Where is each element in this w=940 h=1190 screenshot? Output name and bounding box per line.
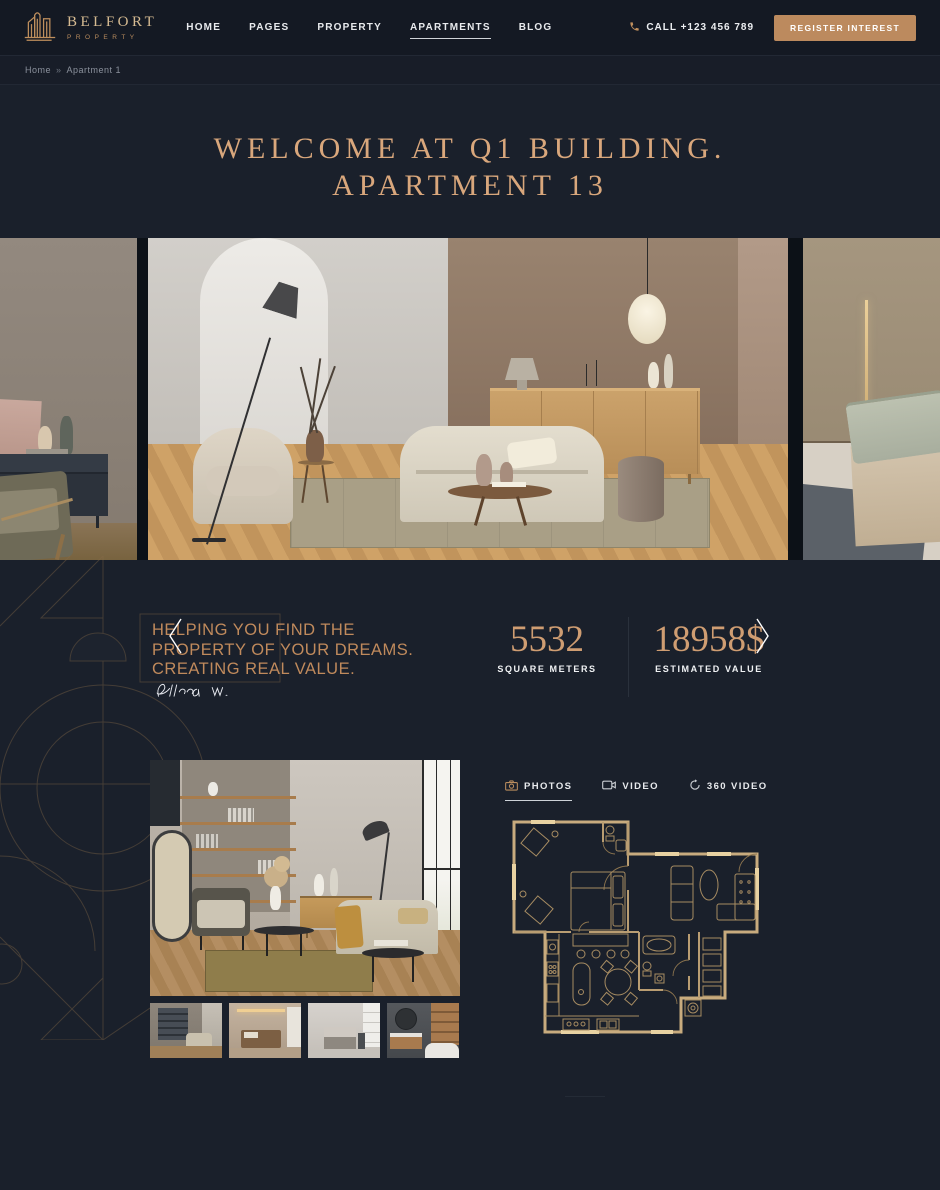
white-bottle (330, 868, 338, 896)
stats-divider (628, 617, 629, 697)
rotate-360-icon (689, 779, 701, 794)
table-leg (300, 934, 302, 956)
video-camera-icon (602, 780, 616, 793)
window-mullion (422, 868, 460, 870)
pillow (244, 1032, 258, 1038)
wood-shelf (178, 848, 296, 851)
thumbnail-bathroom[interactable] (387, 1003, 459, 1058)
thumbnail-living-room[interactable] (150, 1003, 222, 1058)
sofa-pillow (398, 908, 428, 924)
chevron-right-icon (752, 617, 776, 655)
black-coffee-table (254, 926, 314, 935)
dark-corner (150, 760, 180, 826)
carousel-slide-main[interactable] (148, 238, 788, 560)
floor (308, 1049, 380, 1058)
shelf-vase (208, 782, 218, 796)
white-vase (648, 362, 659, 388)
table-leg (412, 956, 414, 982)
quote-line2: PROPERTY OF YOUR DREAMS. (152, 641, 413, 661)
brand-text: BELFORT PROPERTY (67, 14, 157, 41)
floor-lamp-base (192, 538, 226, 542)
featured-photo-living-room[interactable] (150, 760, 460, 996)
armchair-cushion (206, 466, 280, 496)
mustard-throw (334, 905, 364, 949)
photo-carousel (0, 238, 940, 560)
island-base (324, 1037, 356, 1049)
books-row (228, 808, 254, 822)
oval-screen (152, 830, 192, 942)
tab-video[interactable]: VIDEO (602, 779, 659, 801)
tab-label: VIDEO (622, 781, 659, 792)
nav-item-home[interactable]: HOME (186, 16, 221, 39)
chevron-left-icon (166, 617, 190, 655)
belfort-property-page: BELFORT PROPERTY HOME PAGES PROPERTY APA… (0, 0, 940, 1190)
stat-label: SQUARE METERS (488, 664, 606, 674)
wood-shelf (178, 796, 296, 799)
books-row (196, 834, 218, 848)
page-title-line2: APARTMENT 13 (0, 167, 940, 204)
brand-tagline: PROPERTY (67, 34, 157, 41)
wood-vanity (390, 1037, 422, 1049)
tab-label: 360 VIDEO (707, 781, 768, 792)
register-interest-button[interactable]: REGISTER INTEREST (774, 15, 916, 41)
window (363, 1003, 380, 1047)
arch-niche (200, 238, 328, 444)
tabletop-vase (476, 454, 492, 486)
quote-line3: CREATING REAL VALUE. (152, 660, 413, 680)
header-right: CALL +123 456 789 REGISTER INTEREST (629, 15, 916, 41)
candle (586, 364, 587, 386)
quote-line1: HELPING YOU FIND THE (152, 621, 413, 641)
pendant-cord (647, 238, 648, 296)
page-title-line1: WELCOME AT Q1 BUILDING. (0, 130, 940, 167)
camera-icon (505, 780, 518, 794)
brand-logo[interactable]: BELFORT PROPERTY (22, 8, 157, 47)
armchair-cushion (197, 900, 245, 928)
stat-square-meters: 5532 SQUARE METERS (488, 620, 606, 674)
floor (150, 1046, 222, 1058)
sideboard-leg (688, 474, 691, 484)
call-label: CALL +123 456 789 (646, 22, 754, 33)
breadcrumb-bar: Home»Apartment 1 (0, 55, 940, 85)
carousel-slide-right[interactable] (803, 238, 940, 560)
tab-360-video[interactable]: 360 VIDEO (689, 779, 768, 801)
table-lamp-base (517, 380, 527, 390)
white-bottle (664, 354, 673, 388)
carousel-slide-left[interactable] (0, 238, 137, 560)
floor (229, 1048, 301, 1058)
wood-shelf (178, 822, 296, 825)
floor-plan (503, 812, 781, 1052)
thumbnail-kitchen[interactable] (308, 1003, 380, 1058)
breadcrumb-current: Apartment 1 (67, 65, 122, 75)
nav-item-property[interactable]: PROPERTY (317, 16, 382, 39)
table-leg (266, 934, 268, 956)
carousel-prev-button[interactable] (166, 616, 190, 656)
section-divider-dash (565, 1096, 605, 1097)
island-top (324, 1027, 356, 1037)
tab-label: PHOTOS (524, 781, 572, 792)
chair-leg (242, 936, 244, 950)
breadcrumb-separator: » (56, 65, 62, 75)
agent-signature (152, 678, 262, 709)
tab-photos[interactable]: PHOTOS (505, 779, 572, 801)
cove-light (237, 1009, 285, 1012)
bar-stool (358, 1033, 365, 1049)
thumbnail-bedroom[interactable] (229, 1003, 301, 1058)
books (374, 940, 408, 946)
stat-label: ESTIMATED VALUE (648, 664, 770, 674)
wood-shelving (431, 1003, 459, 1045)
white-vase (314, 874, 324, 896)
building-logo-icon (22, 8, 58, 47)
breadcrumb: Home»Apartment 1 (25, 65, 121, 75)
window (287, 1007, 301, 1047)
candle (596, 360, 597, 386)
brown-vase (306, 430, 324, 462)
nav-item-blog[interactable]: BLOG (519, 16, 553, 39)
page-title: WELCOME AT Q1 BUILDING. APARTMENT 13 (0, 130, 940, 204)
nav-item-pages[interactable]: PAGES (249, 16, 289, 39)
round-mirror (395, 1008, 417, 1030)
nav-item-apartments[interactable]: APARTMENTS (410, 16, 491, 39)
pendant-lamp (628, 294, 666, 344)
bed-mattress (845, 389, 940, 464)
quote-block: HELPING YOU FIND THE PROPERTY OF YOUR DR… (152, 621, 413, 680)
pampas-grass (274, 856, 290, 872)
far-wall (738, 238, 788, 444)
bathtub (425, 1043, 459, 1058)
phone-icon (629, 21, 640, 35)
cylinder-stool (618, 456, 664, 522)
window-mullion (450, 760, 451, 952)
stat-value: 5532 (488, 620, 606, 660)
books (492, 482, 526, 487)
console-leg (96, 516, 99, 528)
header: BELFORT PROPERTY HOME PAGES PROPERTY APA… (0, 0, 940, 55)
chair-leg (200, 936, 202, 950)
carousel-next-button[interactable] (752, 616, 776, 656)
table-leg (372, 956, 374, 982)
gallery-tabs: PHOTOS VIDEO 360 VIDEO (505, 779, 768, 801)
main-nav: HOME PAGES PROPERTY APARTMENTS BLOG (186, 16, 552, 39)
dark-shelf (158, 1008, 188, 1040)
breadcrumb-home[interactable]: Home (25, 65, 51, 75)
white-vase (270, 886, 281, 910)
olive-rug (205, 950, 373, 992)
call-link[interactable]: CALL +123 456 789 (629, 21, 754, 35)
brand-name: BELFORT (67, 14, 157, 31)
